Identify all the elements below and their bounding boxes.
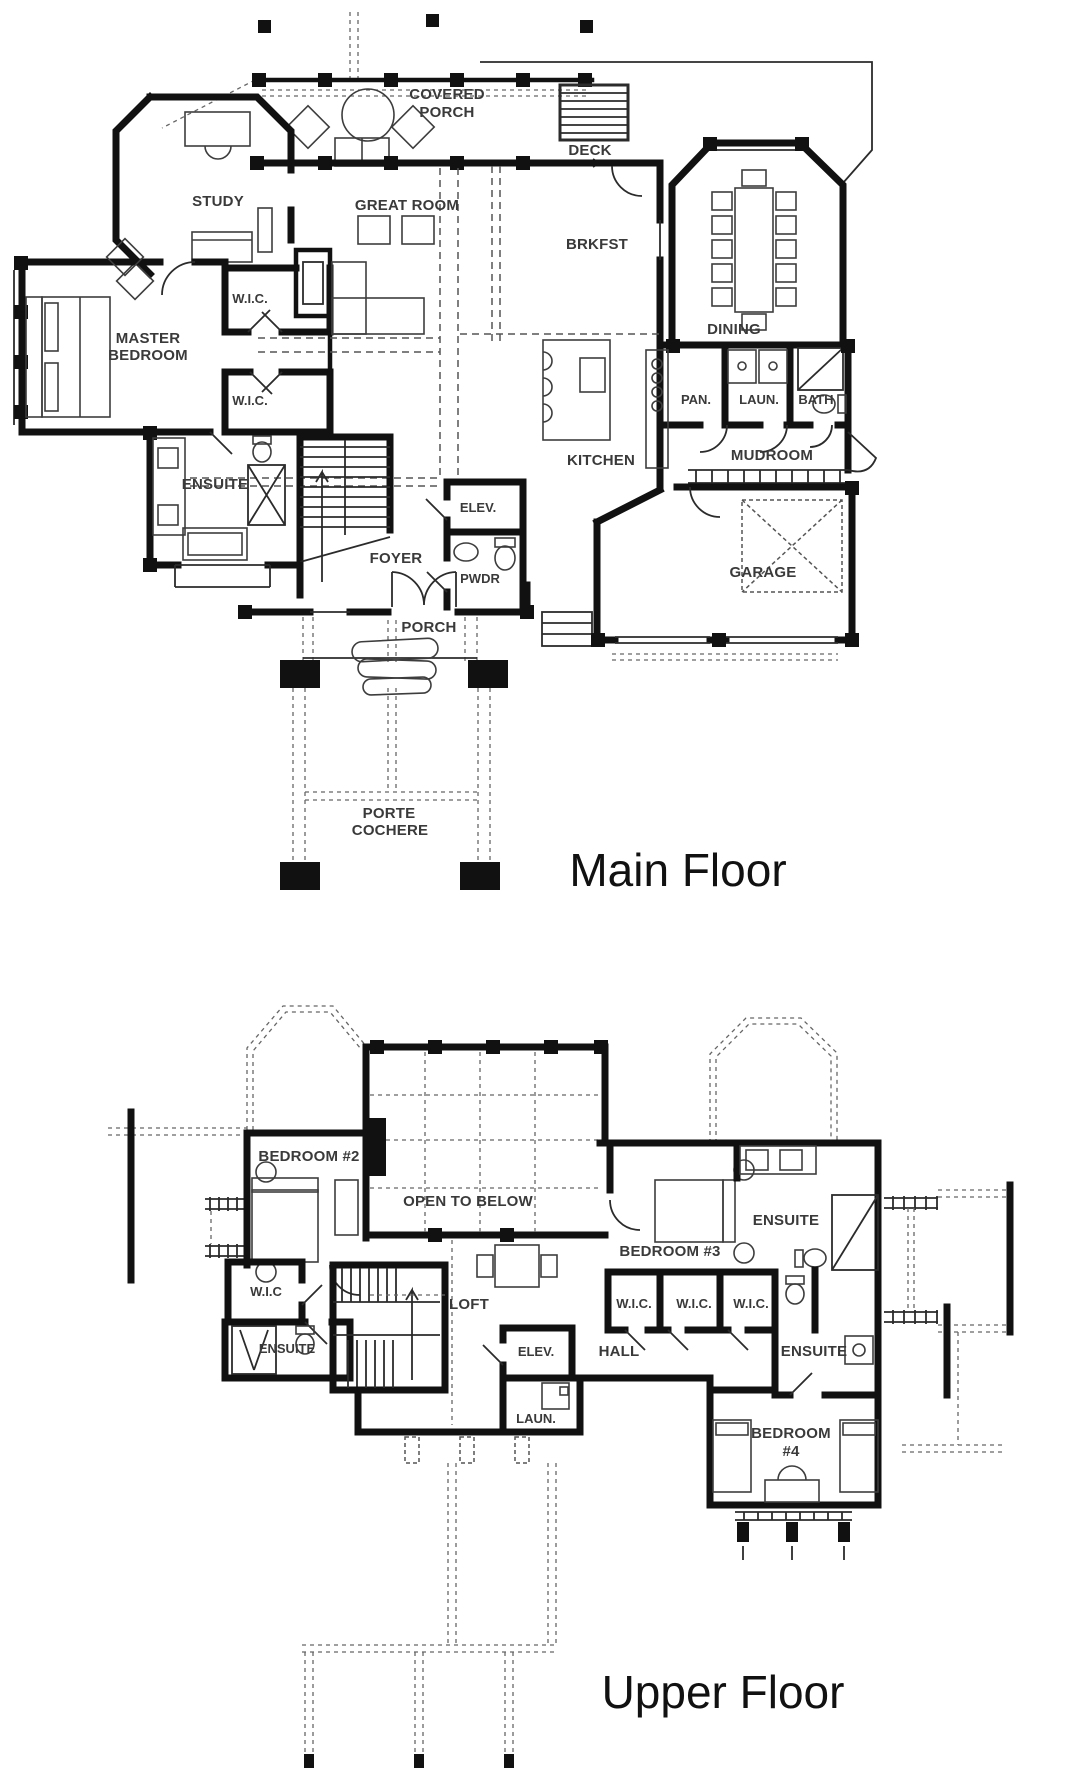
- walk-in-closet-lower: [225, 332, 330, 432]
- ensuite-toilet: [253, 436, 271, 462]
- porch-table: [342, 89, 394, 141]
- sectional-sofa: [332, 262, 424, 334]
- ensuite-b3-shower: [832, 1195, 878, 1270]
- room-label-pwdr: PWDR: [460, 571, 500, 586]
- room-label-dining: DINING: [707, 321, 761, 338]
- room-label-laun: LAUN.: [739, 392, 779, 407]
- mudroom-bay: [848, 432, 876, 472]
- garage-entry-door: [690, 487, 720, 517]
- room-label-great-room: GREAT ROOM: [355, 197, 459, 214]
- fireplace: [296, 250, 330, 316]
- room-label-ensuite-b4: ENSUITE: [781, 1343, 847, 1360]
- breakfast-nook: [460, 163, 660, 345]
- room-label-bedroom2: BEDROOM #2: [258, 1148, 359, 1165]
- room-label-bedroom3: BEDROOM #3: [619, 1243, 720, 1260]
- washer: [728, 350, 756, 383]
- bedroom4-balcony: [735, 1512, 852, 1560]
- master-bed: [26, 297, 110, 417]
- room-label-covered-porch: COVERED: [409, 86, 485, 103]
- rear-entry: [542, 490, 660, 646]
- upper-bottom-structure: [302, 1390, 580, 1768]
- room-label-master-1: MASTER: [116, 330, 181, 347]
- room-label-porch: PORCH: [401, 619, 456, 636]
- dryer: [759, 350, 787, 383]
- powder-room: [427, 532, 523, 607]
- room-label-elev: ELEV.: [460, 500, 496, 515]
- room-label-ensuite-left: ENSUITE: [259, 1341, 316, 1356]
- room-label-wic3: W.I.C.: [733, 1296, 768, 1311]
- ensuite-b4-vanity: [845, 1336, 873, 1364]
- loft-table: [477, 1245, 557, 1287]
- deck-door: [612, 166, 642, 196]
- room-label-garage: GARAGE: [729, 564, 796, 581]
- bedroom-4: [710, 1390, 878, 1560]
- room-label-wic-a: W.I.C.: [232, 291, 267, 306]
- room-label-covered-porch-2: PORCH: [419, 104, 474, 121]
- porch-steps: [352, 638, 439, 695]
- room-label-loft: LOFT: [449, 1296, 489, 1313]
- deck-stairs: [560, 85, 628, 140]
- ensuite-shower: [248, 465, 285, 525]
- armchair: [402, 216, 434, 244]
- pantry-door: [700, 425, 727, 452]
- bedroom4-bed-left: [713, 1420, 751, 1492]
- ensuite-b3-vanity: [740, 1146, 816, 1174]
- room-label-master-2: BEDROOM: [108, 347, 188, 364]
- kitchen: [543, 340, 668, 468]
- floor-plan-page: COVERED PORCH DECK STUDY GREAT ROOM BRKF…: [0, 0, 1080, 1782]
- pwdr-sink: [454, 543, 478, 561]
- bedroom2-dresser: [335, 1180, 358, 1235]
- covered-porch: [162, 73, 592, 166]
- room-label-wic-b: W.I.C.: [232, 393, 267, 408]
- ensuite-b3-toilet: [795, 1249, 826, 1267]
- room-label-ensuite: ENSUITE: [182, 476, 248, 493]
- roof-projection-marks: [258, 12, 593, 78]
- room-label-foyer: FOYER: [370, 550, 423, 567]
- room-label-cochere: COCHERE: [352, 822, 428, 839]
- floor-plan-drawing: COVERED PORCH DECK STUDY GREAT ROOM BRKF…: [0, 0, 1080, 1782]
- bedroom4-dresser: [765, 1466, 819, 1502]
- open-to-below: [366, 1040, 608, 1242]
- roof-outline-dining-bay: [710, 1018, 837, 1143]
- room-label-hall: HALL: [599, 1343, 640, 1360]
- kitchen-island: [543, 340, 610, 440]
- main-floor-plan: COVERED PORCH DECK STUDY GREAT ROOM BRKF…: [14, 12, 876, 896]
- ensuite-vanity: [153, 438, 185, 535]
- room-label-upper-elev: ELEV.: [518, 1344, 554, 1359]
- room-label-wic1: W.I.C.: [616, 1296, 651, 1311]
- ensuite-b4: [775, 1276, 878, 1395]
- study-sofa: [192, 232, 252, 262]
- bedroom4-bed-right: [840, 1420, 878, 1492]
- room-label-bedroom4-1: BEDROOM: [751, 1425, 831, 1442]
- chimney: [366, 1118, 386, 1176]
- room-label-ensuite-b3: ENSUITE: [753, 1212, 819, 1229]
- main-ensuite: [143, 432, 300, 587]
- media-cabinet: [258, 208, 272, 252]
- main-floor-title: Main Floor: [569, 844, 786, 896]
- dining-room: [672, 137, 843, 345]
- dining-table: [712, 170, 796, 330]
- pwdr-toilet: [495, 538, 515, 570]
- room-label-pan: PAN.: [681, 392, 711, 407]
- left-balcony-rails: [131, 1112, 247, 1280]
- study-desk: [185, 112, 250, 146]
- room-label-wic-left: W.I.C: [250, 1284, 282, 1299]
- room-label-wic2: W.I.C.: [676, 1296, 711, 1311]
- room-label-open-to-below: OPEN TO BELOW: [403, 1193, 533, 1210]
- walk-in-closet-row: [608, 1272, 775, 1350]
- room-label-brkfst: BRKFST: [566, 236, 628, 253]
- room-label-study: STUDY: [192, 193, 244, 210]
- room-label-upper-laun: LAUN.: [516, 1411, 556, 1426]
- staircase: [300, 437, 390, 595]
- master-door: [162, 262, 195, 295]
- ensuite-tub: [183, 528, 247, 560]
- upper-floor-plan: BEDROOM #2 OPEN TO BELOW W.I.C ENSUITE L…: [108, 1006, 1010, 1768]
- room-label-bedroom4-2: #4: [782, 1443, 800, 1460]
- hall: [580, 1378, 710, 1390]
- roof-outline-study-bay: [247, 1006, 366, 1130]
- room-label-mudroom: MUDROOM: [731, 447, 813, 464]
- armchair: [358, 216, 390, 244]
- room-label-porte: PORTE: [363, 805, 416, 822]
- upper-floor-title: Upper Floor: [602, 1666, 845, 1718]
- bedroom3-door: [610, 1200, 640, 1230]
- right-balcony-rails: [884, 1185, 1010, 1452]
- room-label-bath: BATH: [798, 392, 833, 407]
- ensuite-b4-toilet: [786, 1276, 804, 1304]
- room-label-kitchen: KITCHEN: [567, 452, 635, 469]
- room-label-deck: DECK: [568, 142, 611, 159]
